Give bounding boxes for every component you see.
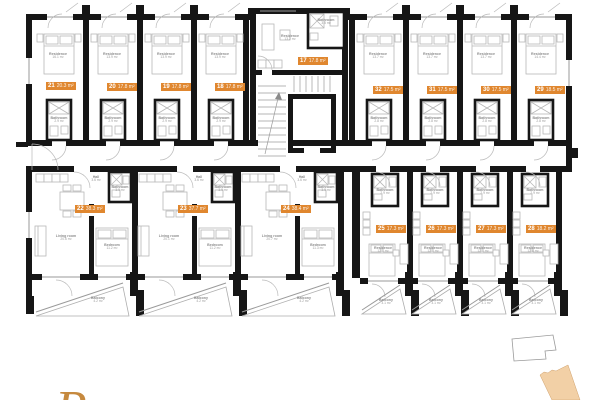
room-label-hall: Hall3.6 m²: [91, 175, 100, 183]
unit-badge-26: 2617.3 m²: [426, 225, 456, 233]
unit-badge-22: 2238.3 m²: [75, 205, 105, 213]
unit-badge-19: 1917.8 m²: [161, 83, 191, 91]
room-label-hall: Hall3.6 m²: [194, 175, 203, 183]
room-label-residence: Residence16.1 m²: [49, 52, 67, 60]
room-label-residence: Residence13.7 m²: [423, 52, 441, 60]
room-label-bedroom: Bedroom11.2 m²: [207, 243, 223, 251]
room-label-living-room: Living room20.7 m²: [262, 234, 282, 242]
room-label-bathroom: Bathroom3.9 m²: [318, 185, 335, 193]
room-label-balcony: Balcony3.1 m²: [379, 298, 393, 306]
room-label-living-room: Living room20.6 m²: [56, 234, 76, 242]
unit-badge-32: 3217.5 m²: [373, 86, 403, 94]
room-label-balcony: Balcony3.1 m²: [429, 298, 443, 306]
room-label-bathroom: Bathroom2.9 m²: [527, 188, 544, 196]
unit-badge-27: 2717.3 m²: [476, 225, 506, 233]
labels-overlay: 2120.3 m²2017.8 m²1917.8 m²1817.8 m²1717…: [0, 0, 600, 400]
room-label-balcony: Balcony4.2 m²: [91, 296, 105, 304]
room-label-residence: Residence12.1 m²: [424, 246, 442, 254]
room-label-balcony: Balcony4.2 m²: [194, 296, 208, 304]
room-label-bathroom: Bathroom2.8 m²: [479, 116, 496, 124]
room-label-bathroom: Bathroom2.8 m²: [371, 116, 388, 124]
unit-badge-17: 1717.8 m²: [298, 57, 328, 65]
room-label-bathroom: Bathroom2.8 m²: [425, 116, 442, 124]
unit-badge-28: 2818.2 m²: [526, 225, 556, 233]
room-label-living-room: Living room20.1 m²: [159, 234, 179, 242]
unit-badge-18: 1817.8 m²: [215, 83, 245, 91]
room-label-bathroom: Bathroom3.5 m²: [318, 18, 335, 26]
room-label-residence: Residence14.4 m²: [531, 52, 549, 60]
room-label-residence: Residence13.9 m²: [211, 52, 229, 60]
room-label-bedroom: Bedroom11.3 m²: [310, 243, 326, 251]
room-label-residence: Residence13.9 m²: [103, 52, 121, 60]
unit-badge-23: 2337.7 m²: [178, 205, 208, 213]
room-label-bathroom: Bathroom2.8 m²: [533, 116, 550, 124]
room-label-balcony: Balcony3.1 m²: [529, 298, 543, 306]
room-label-bathroom: Bathroom2.9 m²: [51, 116, 68, 124]
unit-badge-30: 3017.5 m²: [481, 86, 511, 94]
unit-badge-24: 2438.4 m²: [281, 205, 311, 213]
room-label-bathroom: Bathroom2.9 m²: [105, 116, 122, 124]
room-label-bathroom: Bathroom3.9 m²: [215, 185, 232, 193]
unit-badge-29: 2918.5 m²: [535, 86, 565, 94]
room-label-bathroom: Bathroom3.9 m²: [112, 185, 129, 193]
unit-badge-31: 3117.5 m²: [427, 86, 457, 94]
room-label-bathroom: Bathroom2.9 m²: [477, 188, 494, 196]
room-label-bathroom: Bathroom2.9 m²: [427, 188, 444, 196]
room-label-residence: Residence13.9 m²: [157, 52, 175, 60]
room-label-residence: Residence12.1 m²: [474, 246, 492, 254]
room-label-balcony: Balcony4.2 m²: [297, 296, 311, 304]
room-label-bathroom: Bathroom2.9 m²: [213, 116, 230, 124]
room-label-residence: Residence12.8 m²: [524, 246, 542, 254]
unit-badge-20: 2017.8 m²: [107, 83, 137, 91]
floor-plan-page: 2120.3 m²2017.8 m²1917.8 m²1817.8 m²1717…: [0, 0, 600, 400]
room-label-bathroom: Bathroom2.9 m²: [159, 116, 176, 124]
room-label-residence: Residence13.7 m²: [369, 52, 387, 60]
room-label-bathroom: Bathroom2.9 m²: [377, 188, 394, 196]
room-label-bedroom: Bedroom11.2 m²: [104, 243, 120, 251]
unit-badge-21: 2120.3 m²: [46, 82, 76, 90]
room-label-residence: Residence12.1 m²: [374, 246, 392, 254]
room-label-residence: Residence13.2 m²: [281, 34, 299, 42]
room-label-hall: Hall3.6 m²: [297, 175, 306, 183]
room-label-balcony: Balcony3.1 m²: [479, 298, 493, 306]
room-label-residence: Residence13.7 m²: [477, 52, 495, 60]
unit-badge-25: 2517.3 m²: [376, 225, 406, 233]
